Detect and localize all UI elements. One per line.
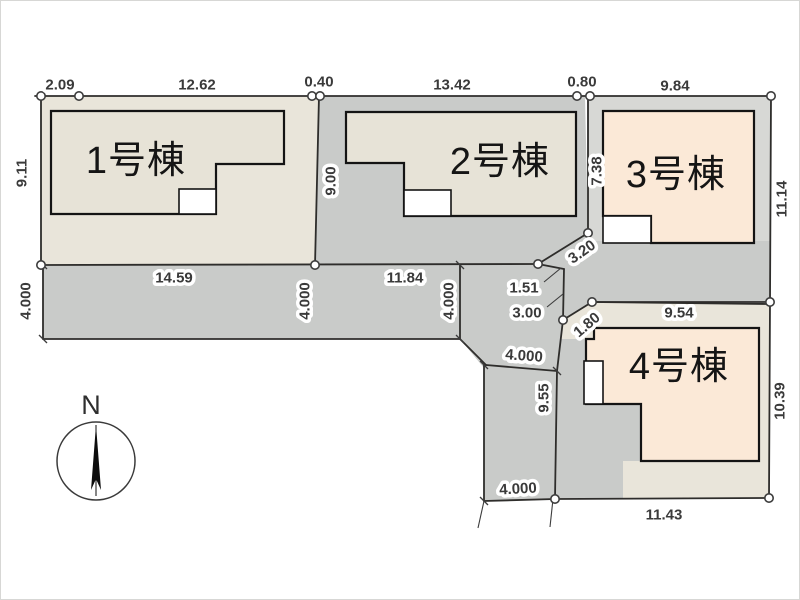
vertex-marker	[316, 92, 324, 100]
dimension-label: 13.42	[433, 77, 471, 94]
dimension-label: 9.55	[536, 383, 553, 412]
building-4-label: 4号棟	[629, 346, 729, 388]
vertex-marker	[767, 92, 775, 100]
building-3-label: 3号棟	[626, 154, 726, 196]
vertex-marker	[37, 92, 45, 100]
building-1-porch	[179, 189, 216, 214]
dimension-label: 4.000	[297, 282, 314, 320]
dimension-label: 9.84	[660, 78, 690, 95]
compass-north-label: N	[81, 390, 101, 420]
vertex-marker	[551, 495, 559, 503]
vertex-marker	[573, 92, 581, 100]
building-2-porch	[404, 190, 451, 216]
site-plan-drawing: 2.0912.620.4013.420.809.849.114.00014.59…	[1, 1, 800, 600]
vertex-marker	[588, 298, 596, 306]
roadway-top-edge	[43, 264, 538, 265]
site-plan-canvas: 2.0912.620.4013.420.809.849.114.00014.59…	[0, 0, 800, 600]
dimension-label: 14.59	[155, 270, 193, 287]
dimension-label: 1.51	[509, 280, 538, 297]
dimension-label: 10.39	[772, 382, 789, 420]
dimension-label: 0.80	[567, 74, 596, 91]
compass: N	[57, 390, 135, 500]
vertex-marker	[766, 298, 774, 306]
vertex-marker	[75, 92, 83, 100]
dimension-label: 3.00	[512, 305, 541, 322]
dimension-label: 9.00	[323, 166, 340, 195]
vertex-marker	[584, 229, 592, 237]
dimension-label: 7.38	[589, 156, 606, 185]
dimension-label: 9.11	[14, 159, 31, 187]
boundary-right-lower	[769, 302, 770, 498]
vertex-marker	[534, 260, 542, 268]
vertex-marker	[308, 92, 316, 100]
dimension-label: 11.14	[774, 180, 791, 217]
vertex-marker	[586, 92, 594, 100]
dimension-label: 11.43	[646, 507, 683, 524]
dimension-label: 2.09	[45, 77, 74, 94]
vertex-marker	[765, 494, 773, 502]
vertex-marker	[559, 316, 567, 324]
dimension-label: 4.000	[441, 282, 458, 320]
dimension-label: 4.000	[18, 282, 35, 320]
boundary-right-upper	[770, 96, 771, 302]
vertex-marker	[37, 261, 45, 269]
boundary-bottom	[555, 498, 769, 499]
building-1-label: 1号棟	[86, 140, 186, 182]
dimension-label: 4.000	[505, 346, 544, 366]
dimension-label: 12.62	[178, 77, 216, 94]
building-3-porch	[603, 216, 651, 243]
dimension-label: 4.000	[499, 480, 537, 499]
dimension-label: 0.40	[304, 74, 333, 91]
dimension-label: 11.84	[387, 270, 424, 287]
building-2-label: 2号棟	[450, 141, 550, 183]
building-4-porch	[584, 361, 603, 404]
vertex-marker	[311, 261, 319, 269]
driveway-extension-left	[478, 501, 484, 528]
dimension-label: 9.54	[664, 305, 694, 322]
